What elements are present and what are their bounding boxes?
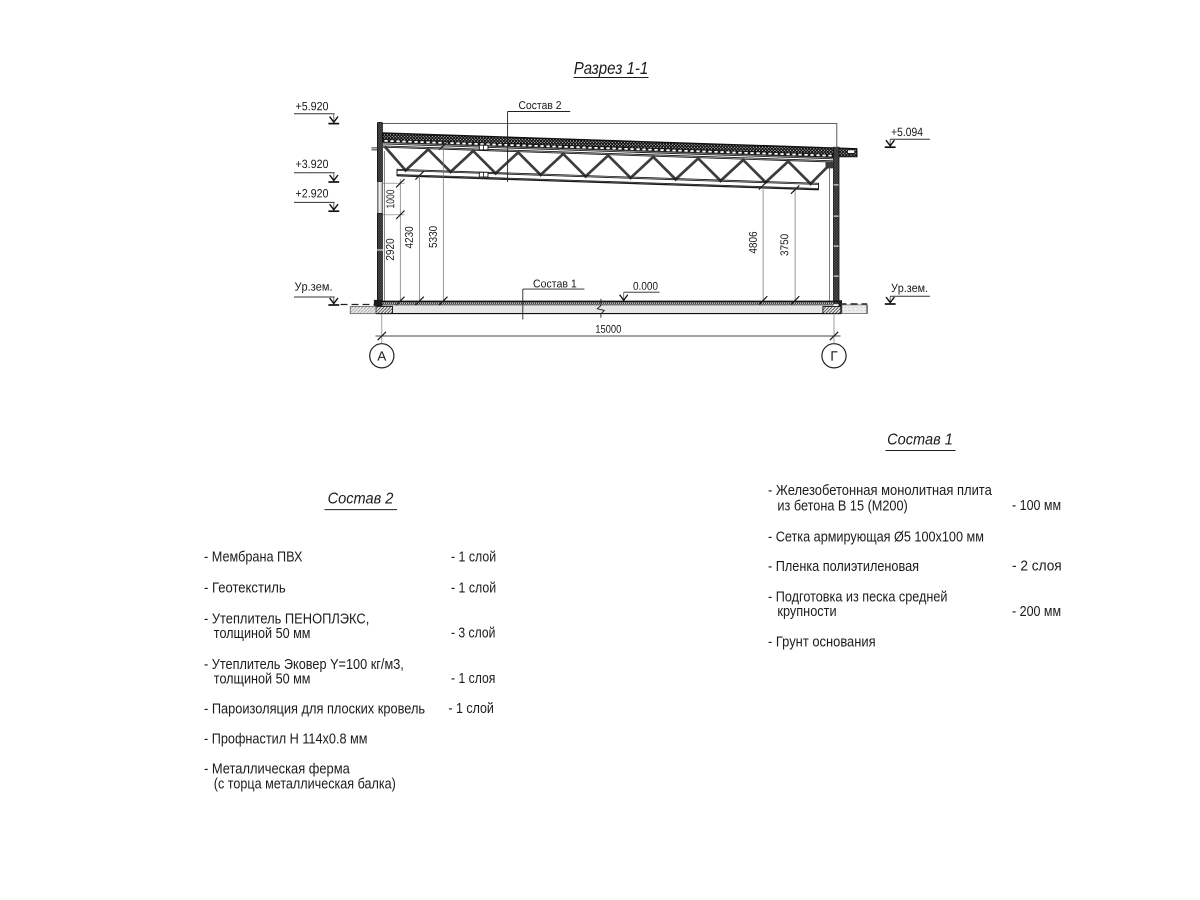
svg-text:Состав 2: Состав 2 (328, 491, 394, 508)
svg-text:- 1 слоя: - 1 слоя (451, 670, 495, 687)
svg-text:- Железобетонная монолитная п: - Железобетонная монолитная плита (768, 482, 992, 499)
svg-text:- 1 слой: - 1 слой (451, 549, 496, 566)
svg-text:- 1 слой: - 1 слой (451, 579, 496, 596)
svg-text:- Сетка армирующая Ø5 100х100: - Сетка армирующая Ø5 100х100 мм (768, 528, 984, 545)
svg-text:- 1 слой: - 1 слой (448, 700, 494, 717)
svg-text:- 3 слой: - 3 слой (451, 625, 495, 642)
svg-text:- 100 мм: - 100 мм (1012, 497, 1061, 514)
svg-text:Состав 1: Состав 1 (887, 432, 953, 449)
svg-text:Разрез 1-1: Разрез 1-1 (574, 58, 649, 78)
svg-text:(с торца металлическая балка): (с торца металлическая балка) (214, 776, 396, 793)
svg-text:крупности: крупности (777, 603, 836, 620)
svg-text:- Мембрана ПВХ: - Мембрана ПВХ (204, 549, 303, 566)
svg-text:- Пленка полиэтиленовая: - Пленка полиэтиленовая (768, 558, 919, 575)
svg-text:- 2 слоя: - 2 слоя (1012, 558, 1062, 575)
svg-text:- Пароизоляция для плоских кро: - Пароизоляция для плоских кровель (204, 701, 425, 718)
svg-text:толщиной 50 мм: толщиной 50 мм (214, 671, 311, 688)
svg-text:толщиной 50 мм: толщиной 50 мм (214, 625, 311, 642)
svg-text:- Грунт основания: - Грунт основания (768, 634, 876, 651)
svg-text:из бетона В 15 (М200): из бетона В 15 (М200) (777, 498, 907, 515)
svg-text:- Геотекстиль: - Геотекстиль (204, 580, 286, 597)
svg-text:- Профнастил Н 114х0.8 мм: - Профнастил Н 114х0.8 мм (204, 731, 368, 748)
svg-text:- 200 мм: - 200 мм (1012, 603, 1061, 620)
